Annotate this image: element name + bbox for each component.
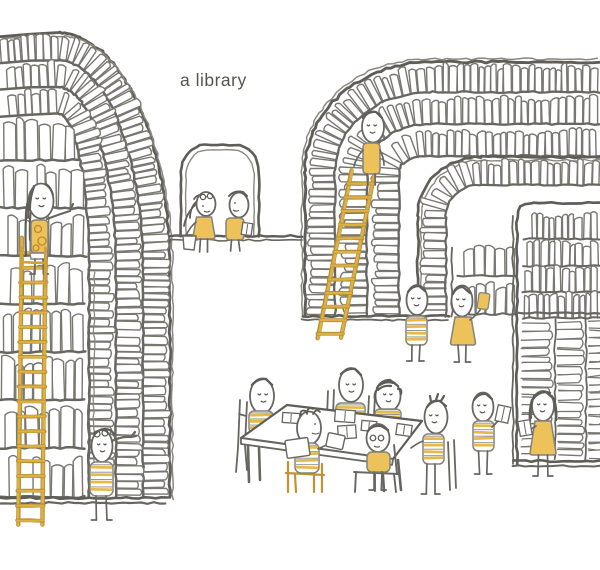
svg-text:a library: a library bbox=[180, 70, 247, 90]
